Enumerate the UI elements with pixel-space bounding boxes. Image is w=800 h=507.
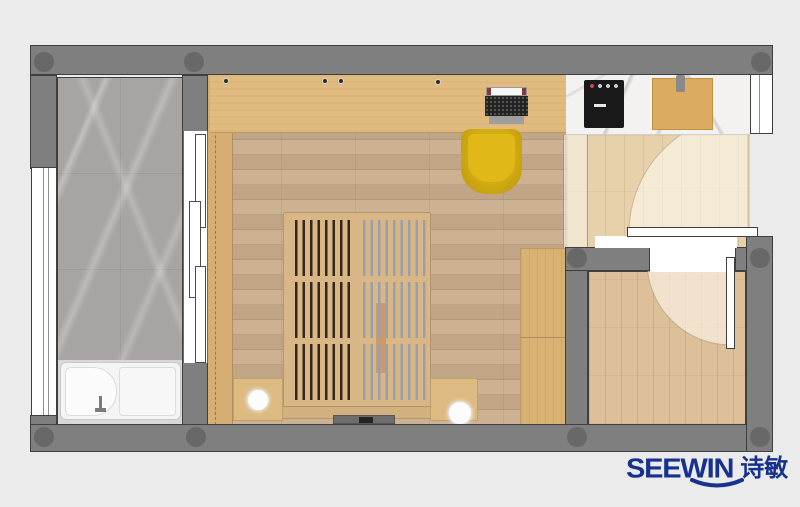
lamp-left: [247, 389, 269, 411]
entry-door-leaf: [627, 227, 758, 237]
wardrobe-right-seam: [521, 337, 568, 338]
window-left-mullion: [48, 168, 49, 415]
bed-slats-left: [290, 220, 353, 404]
logo-cn-text: 诗敏: [740, 448, 788, 483]
window-left: [31, 167, 57, 416]
logo-smile-icon: [690, 478, 744, 490]
wall-left-upper: [30, 75, 57, 169]
structural-column: [34, 52, 54, 72]
structural-column: [186, 427, 206, 447]
bed-frame: [283, 212, 431, 408]
room2-door-opening: [650, 246, 735, 272]
structural-column: [567, 248, 587, 268]
mouse-pad: [489, 116, 524, 124]
slat-band: [290, 282, 353, 338]
desk-chair: [461, 129, 522, 194]
slat-band: [358, 344, 427, 400]
window-top-right-mullion: [759, 75, 760, 133]
lamp-right: [448, 401, 472, 425]
bed-slats-right: [358, 220, 427, 404]
structural-column: [567, 427, 587, 447]
wall-divider-vertical: [565, 247, 588, 425]
cutting-board-handle: [676, 75, 685, 92]
desk-knob: [322, 78, 328, 84]
structural-column: [184, 52, 204, 72]
desk-knob: [223, 78, 229, 84]
floorplan: SEEWIN诗敏: [0, 0, 800, 507]
slat-band: [358, 220, 427, 276]
bathroom-outline: [57, 77, 183, 425]
sliding-door-panel: [195, 266, 206, 363]
wall-bath-partition-bottom: [182, 361, 208, 425]
desk-knob: [338, 78, 344, 84]
structural-column: [34, 427, 54, 447]
window-top-right: [750, 74, 773, 134]
window-left-mullion: [43, 168, 44, 415]
wall-bath-partition-top: [182, 75, 208, 133]
slat-band: [290, 220, 353, 276]
cooktop-display: [594, 104, 606, 107]
chair-seat: [468, 134, 515, 182]
room2-door-leaf: [726, 257, 735, 349]
monitor: [486, 87, 527, 96]
wall-right: [746, 236, 773, 452]
structural-column: [750, 248, 770, 268]
desk-knob: [435, 79, 441, 85]
room2-door-swing: [647, 261, 731, 345]
tv-console: [333, 415, 395, 424]
bathroom-sliding-door-track: [183, 131, 208, 363]
tv-console-center: [359, 417, 373, 423]
wall-top: [30, 45, 773, 75]
seewin-logo: SEEWIN诗敏: [626, 448, 798, 500]
structural-column: [751, 52, 771, 72]
wardrobe-right: [520, 248, 567, 425]
cooktop: [584, 80, 624, 128]
slat-band: [290, 344, 353, 400]
structural-column: [750, 427, 770, 447]
slat-band: [358, 282, 427, 338]
keyboard: [485, 96, 528, 116]
glass-partition: [563, 135, 588, 248]
